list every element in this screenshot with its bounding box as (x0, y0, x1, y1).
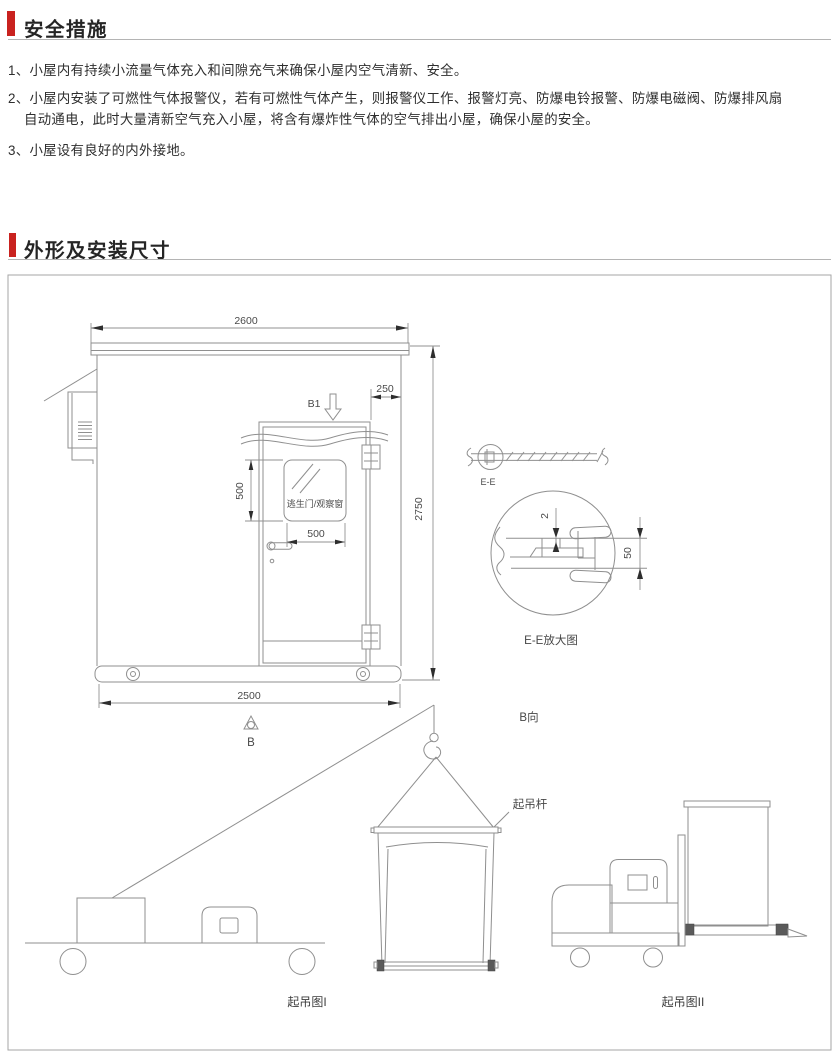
forklift-scene: 起吊图II (552, 801, 807, 1009)
dim-window-width: 500 (287, 523, 345, 547)
dim-overall-height-value: 2750 (413, 497, 425, 521)
truck-cab (610, 860, 667, 904)
dim-top-width: 2600 (91, 315, 408, 344)
crane-hook-icon (424, 741, 441, 759)
base-skid (95, 666, 401, 682)
dim-overall-height: 2750 (402, 346, 440, 680)
lifting-fig2-label: 起吊图II (662, 995, 705, 1009)
truck-hood (552, 885, 612, 933)
dim-door-to-corner: 250 (371, 383, 401, 420)
cab-window (628, 875, 647, 890)
lifting-bar-label: 起吊杆 (513, 797, 548, 811)
forklift-mast (678, 835, 685, 946)
view-b1-label: B1 (308, 398, 321, 410)
view-b-direction-label: B向 (519, 710, 538, 724)
dim-seam-height: 50 (622, 517, 643, 590)
carried-cabin (684, 801, 807, 937)
escape-door: 逃生门/观察窗 (241, 422, 388, 666)
drawing-frame (8, 275, 831, 1050)
seal-profile-top (570, 526, 612, 539)
view-b-label: B (247, 737, 255, 749)
cabin-elevation: 2600 (44, 315, 440, 749)
door-lock (270, 559, 274, 563)
dim-base-width-value: 2500 (237, 690, 261, 702)
section-ee-detail: 2 50 E-E放大图 (491, 491, 647, 647)
section-ee-strip: E-E (467, 445, 608, 488)
section-ee-detail-label: E-E放大图 (524, 633, 578, 647)
view-b-marker: B (244, 716, 258, 749)
hinge-top (362, 445, 380, 469)
section-ee-label: E-E (480, 477, 495, 487)
dim-window-width-value: 500 (307, 528, 325, 540)
crane-truck (25, 898, 325, 975)
side-vent (44, 369, 97, 464)
dim-window-height-value: 500 (234, 482, 246, 500)
dim-seam-gap-value: 2 (539, 513, 551, 519)
observation-window (284, 460, 346, 521)
lifted-cabin (371, 827, 501, 971)
seal-profile-bottom (570, 570, 612, 583)
crane-lift-scene: 起吊杆 起吊图I (25, 705, 548, 1009)
lifting-bar (374, 827, 498, 833)
dim-door-to-corner-value: 250 (376, 383, 394, 395)
dim-seam-height-value: 50 (622, 547, 634, 559)
down-arrow-icon (325, 394, 341, 420)
forklift-truck (552, 835, 685, 967)
hook-pulley (430, 733, 438, 741)
escape-door-label: 逃生门/观察窗 (287, 498, 344, 509)
roof (91, 343, 409, 355)
dim-top-width-value: 2600 (234, 315, 258, 327)
hinge-bottom (362, 625, 380, 649)
lifting-fig1-label: 起吊图I (287, 995, 326, 1009)
view-b1-marker: B1 (308, 394, 341, 420)
dimension-drawing: 2600 (0, 0, 840, 1063)
dim-base-width: 2500 (99, 684, 400, 708)
